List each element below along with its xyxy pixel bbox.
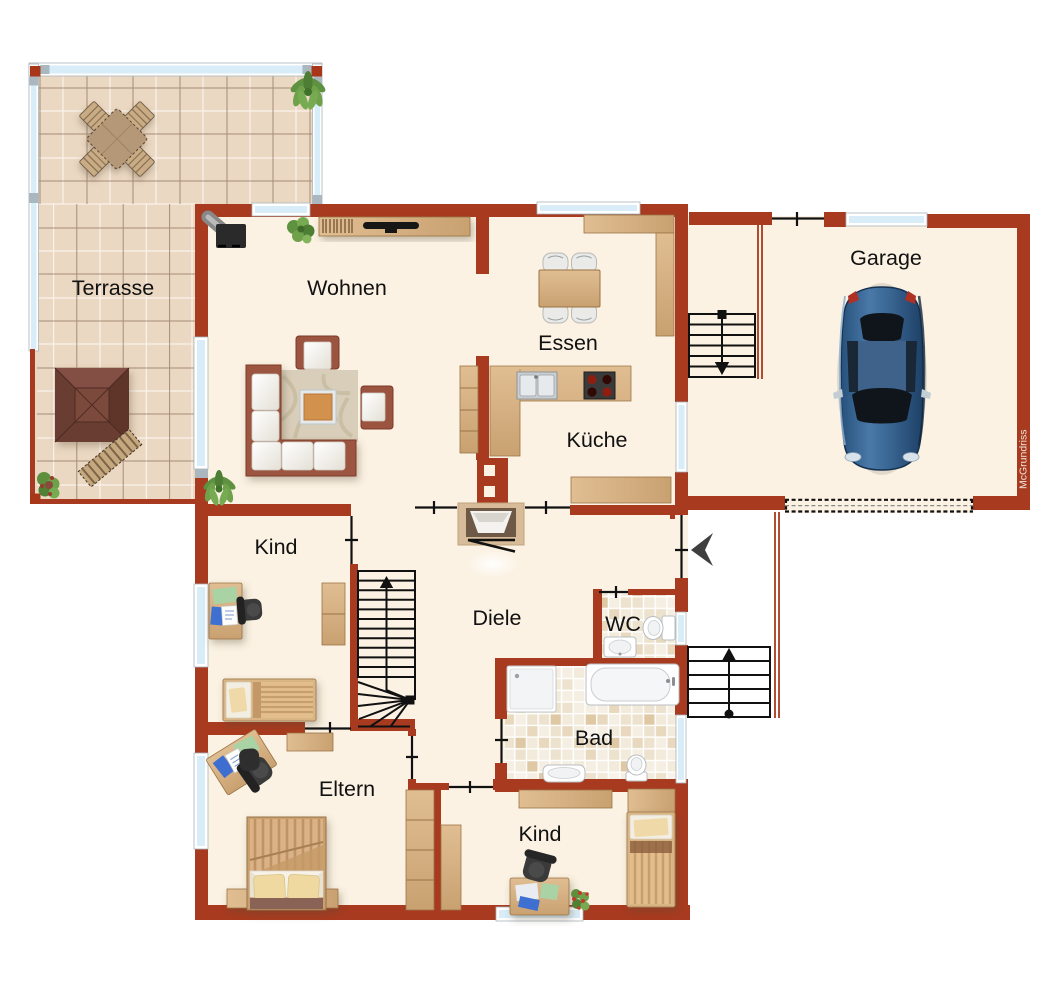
svg-text:Essen: Essen <box>538 331 598 355</box>
svg-text:Diele: Diele <box>473 606 522 630</box>
svg-text:Terrasse: Terrasse <box>72 276 154 300</box>
svg-text:Wohnen: Wohnen <box>307 276 387 300</box>
svg-text:Garage: Garage <box>850 246 922 270</box>
svg-text:Eltern: Eltern <box>319 777 375 801</box>
svg-text:WC: WC <box>605 612 641 636</box>
svg-text:Kind: Kind <box>254 535 297 559</box>
svg-text:Bad: Bad <box>575 726 613 750</box>
svg-text:Küche: Küche <box>567 428 628 452</box>
svg-text:McGrundriss: McGrundriss <box>1018 429 1030 489</box>
svg-text:Kind: Kind <box>518 822 561 846</box>
